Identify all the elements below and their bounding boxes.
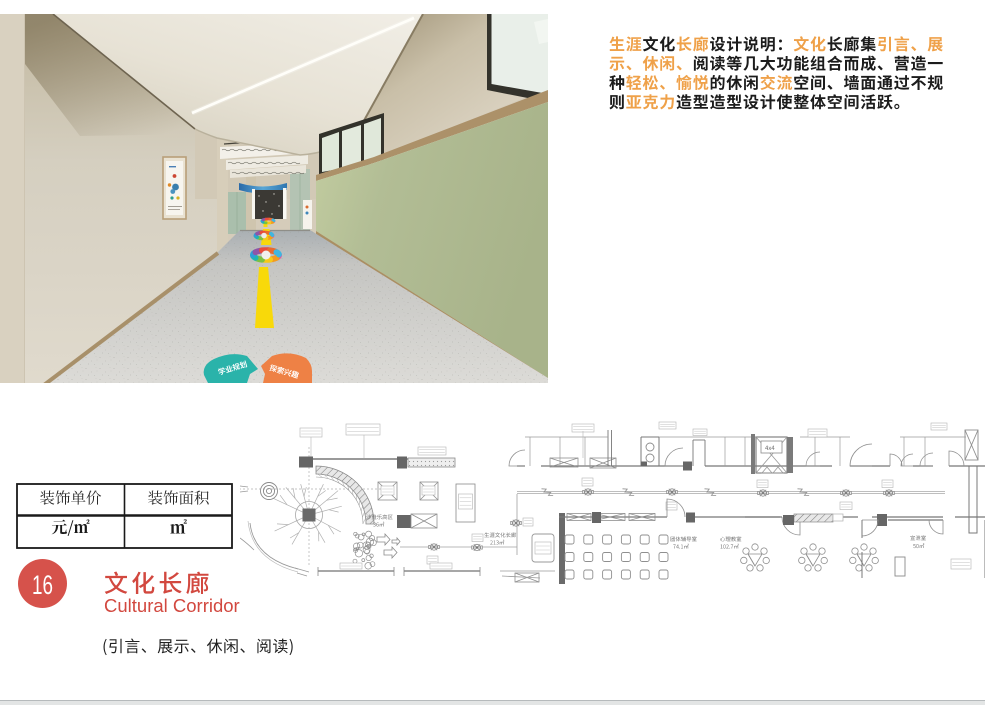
svg-text:16: 16 [32,570,53,600]
